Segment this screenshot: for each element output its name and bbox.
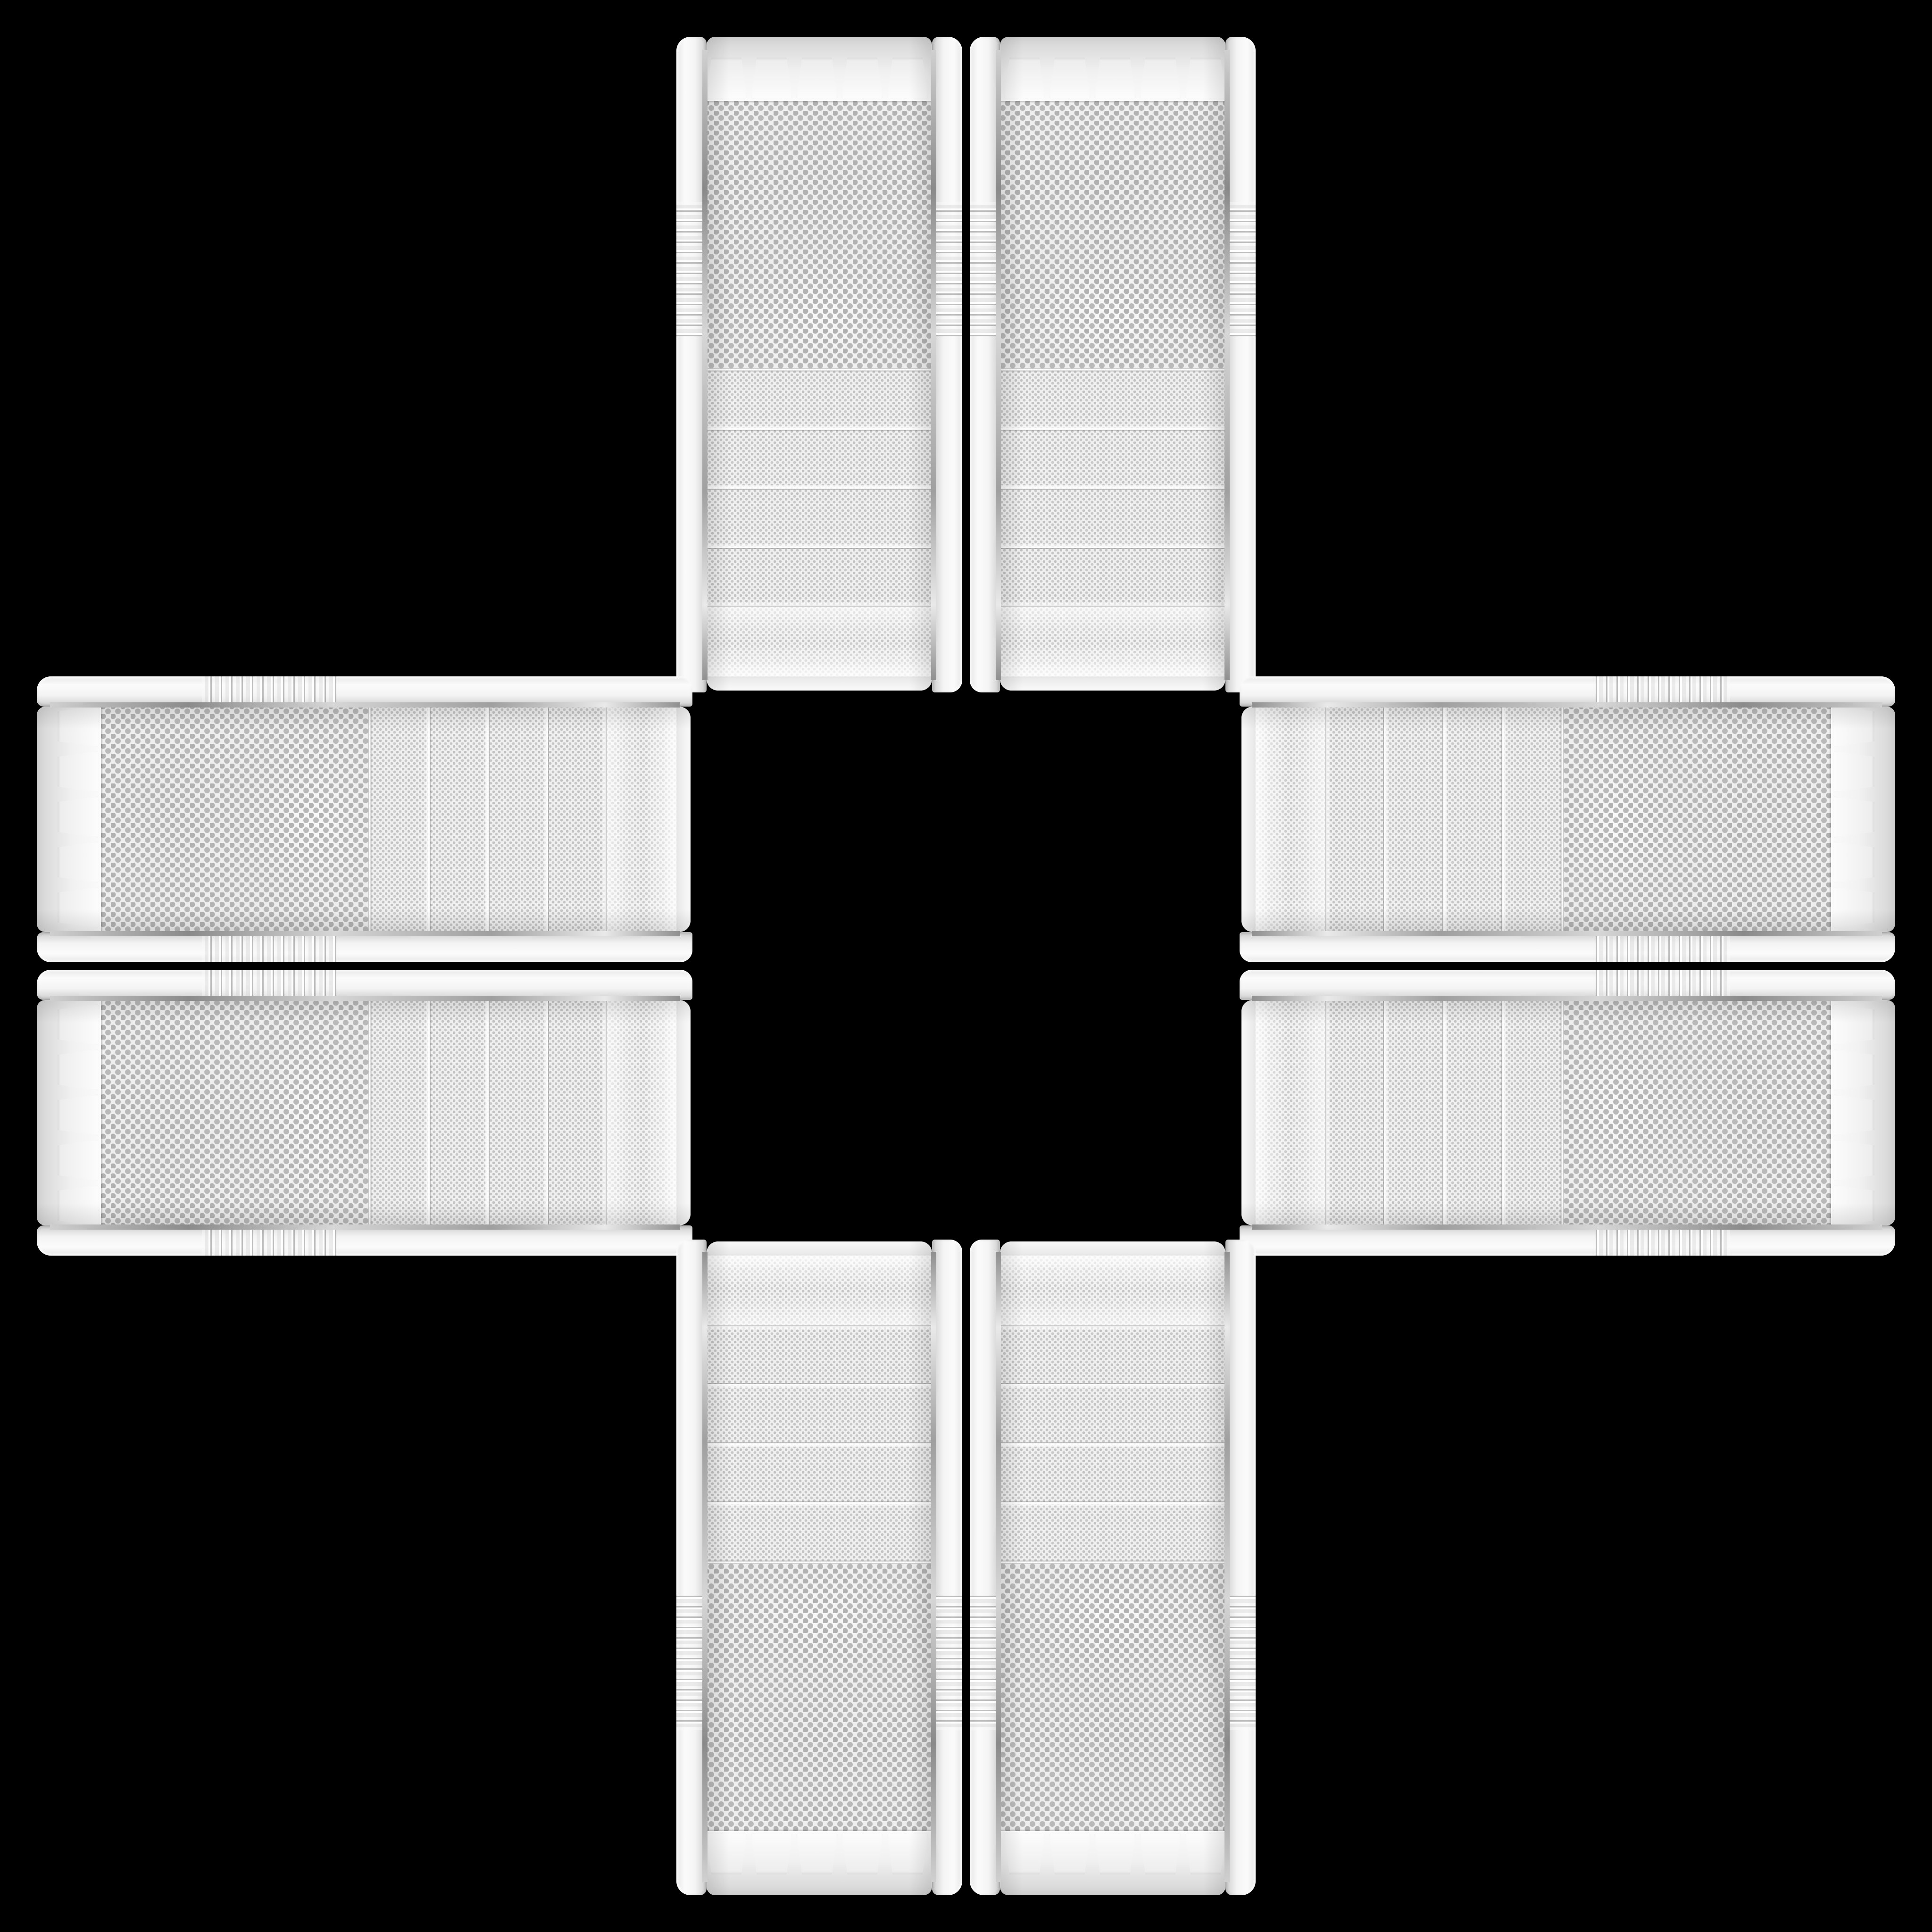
cap-facet <box>1834 796 1874 838</box>
case-left-bottom: COOLER MASTER <box>37 970 692 1256</box>
pc-case: COOLER MASTER <box>37 676 692 962</box>
cap-facet <box>1185 1834 1226 1874</box>
cap-facet <box>841 58 883 98</box>
chrome-trim-right <box>702 50 708 680</box>
case-bottom-right: COOLER MASTER <box>970 1240 1256 1895</box>
cap-facet <box>1094 1834 1136 1874</box>
cap-facet <box>1834 887 1874 928</box>
top-bezel-mesh <box>707 1241 932 1326</box>
case-bottom-left: COOLER MASTER <box>676 1240 962 1895</box>
side-rail-right <box>1225 37 1256 692</box>
side-rail-left <box>932 37 962 692</box>
bottom-cap-band <box>1000 37 1225 101</box>
drive-bay-covers <box>1326 1000 1563 1225</box>
chrome-trim-right <box>50 1224 680 1230</box>
drive-bay-covers <box>1000 369 1225 606</box>
top-bezel-mesh <box>606 707 691 932</box>
chrome-trim-right <box>1224 1252 1230 1882</box>
pc-case: COOLER MASTER <box>1240 970 1895 1256</box>
cap-facet <box>58 1094 98 1136</box>
cap-facet <box>751 58 792 98</box>
front-mesh: COOLER MASTER <box>1563 1000 1832 1225</box>
side-rail-right <box>1225 1240 1256 1895</box>
cap-facet <box>58 796 98 838</box>
case-right-bottom: COOLER MASTER <box>1240 970 1895 1256</box>
chrome-trim-right <box>50 702 680 708</box>
front-panel: COOLER MASTER <box>1240 1000 1895 1225</box>
top-cap <box>707 1241 932 1255</box>
side-rail-left <box>37 932 692 962</box>
pc-case: COOLER MASTER <box>37 970 692 1256</box>
cap-facet <box>706 1834 747 1874</box>
top-bezel-mesh <box>1000 1241 1225 1326</box>
cap-facet <box>1049 58 1091 98</box>
grip-ribs <box>1225 1596 1256 1730</box>
chrome-trim-left <box>1252 931 1882 936</box>
grip-ribs <box>1596 1225 1730 1256</box>
chrome-trim-right <box>1252 702 1882 708</box>
front-panel: COOLER MASTER <box>707 1240 932 1895</box>
front-panel: COOLER MASTER <box>1000 37 1225 692</box>
grip-ribs <box>202 932 336 962</box>
cap-facet <box>1185 58 1226 98</box>
cap-facet <box>1140 58 1181 98</box>
bottom-cap-band <box>707 1831 932 1895</box>
bottom-cap-band <box>1000 1831 1225 1895</box>
front-panel: COOLER MASTER <box>707 37 932 692</box>
chrome-trim-right <box>1224 50 1230 680</box>
top-cap <box>677 1000 691 1225</box>
cap-facet <box>1834 1049 1874 1091</box>
front-panel: COOLER MASTER <box>1240 707 1895 932</box>
front-mesh: COOLER MASTER <box>100 1000 369 1225</box>
front-mesh: COOLER MASTER <box>1000 100 1225 369</box>
side-rail-left <box>932 1240 962 1895</box>
drive-bay-covers <box>1326 707 1563 932</box>
cap-facet <box>796 1834 838 1874</box>
case-top-right: COOLER MASTER <box>970 37 1256 692</box>
chrome-trim-left <box>931 50 936 680</box>
top-bezel-mesh <box>1241 1000 1326 1225</box>
bottom-cap-band <box>37 707 101 932</box>
cap-facet <box>706 58 747 98</box>
pc-case: COOLER MASTER <box>1240 676 1895 962</box>
chrome-trim-right <box>1252 1224 1882 1230</box>
front-panel: COOLER MASTER <box>37 1000 692 1225</box>
top-bezel-mesh <box>707 606 932 691</box>
cap-facet <box>1834 1004 1874 1045</box>
front-mesh: COOLER MASTER <box>1563 707 1832 932</box>
cap-facet <box>1049 1834 1091 1874</box>
cap-facet <box>751 1834 792 1874</box>
top-bezel-mesh <box>606 1000 691 1225</box>
cap-facet <box>58 751 98 792</box>
top-cap <box>677 707 691 932</box>
top-cap <box>1241 1000 1255 1225</box>
pc-case: COOLER MASTER <box>970 37 1256 692</box>
pc-case: COOLER MASTER <box>676 37 962 692</box>
bottom-cap-band <box>707 37 932 101</box>
cap-facet <box>1094 58 1136 98</box>
cap-facet <box>1004 58 1045 98</box>
top-bezel-mesh <box>1000 606 1225 691</box>
case-top-left: COOLER MASTER <box>676 37 962 692</box>
drive-bay-covers <box>707 1326 932 1563</box>
cap-facet <box>841 1834 883 1874</box>
side-rail-right <box>1240 1225 1895 1256</box>
cap-facet <box>58 1049 98 1091</box>
cap-facet <box>887 1834 928 1874</box>
drive-bay-covers <box>369 707 606 932</box>
drive-bay-covers <box>707 369 932 606</box>
cap-facet <box>1834 1094 1874 1136</box>
cap-facet <box>1140 1834 1181 1874</box>
front-mesh: COOLER MASTER <box>707 1563 932 1832</box>
side-rail-right <box>37 1225 692 1256</box>
top-cap <box>1241 707 1255 932</box>
cap-facet <box>1004 1834 1045 1874</box>
chrome-trim-right <box>702 1252 708 1882</box>
cap-facet <box>1834 706 1874 747</box>
case-right-top: COOLER MASTER <box>1240 676 1895 962</box>
cap-facet <box>1834 841 1874 883</box>
grip-ribs <box>932 202 962 336</box>
top-cap <box>707 677 932 691</box>
top-bezel-mesh <box>1241 707 1326 932</box>
cap-facet <box>1834 1140 1874 1181</box>
pc-case: COOLER MASTER <box>970 1240 1256 1895</box>
chrome-trim-left <box>996 50 1001 680</box>
cap-facet <box>58 1140 98 1181</box>
cap-facet <box>887 58 928 98</box>
grip-ribs <box>202 1225 336 1256</box>
grip-ribs <box>1225 202 1256 336</box>
case-left-top: COOLER MASTER <box>37 676 692 962</box>
drive-bay-covers <box>369 1000 606 1225</box>
bottom-cap-band <box>1831 707 1895 932</box>
front-mesh: COOLER MASTER <box>707 100 932 369</box>
front-panel: COOLER MASTER <box>1000 1240 1225 1895</box>
pc-case: COOLER MASTER <box>676 1240 962 1895</box>
chrome-trim-left <box>931 1252 936 1882</box>
side-rail-left <box>1240 932 1895 962</box>
top-cap <box>1000 1241 1225 1255</box>
front-mesh: COOLER MASTER <box>100 707 369 932</box>
cap-facet <box>58 887 98 928</box>
cap-facet <box>58 1004 98 1045</box>
chrome-trim-left <box>50 996 680 1001</box>
chrome-trim-left <box>50 931 680 936</box>
grip-ribs <box>1596 932 1730 962</box>
chrome-trim-left <box>996 1252 1001 1882</box>
cap-facet <box>796 58 838 98</box>
grip-ribs <box>932 1596 962 1730</box>
cap-facet <box>58 706 98 747</box>
cap-facet <box>58 841 98 883</box>
chrome-trim-left <box>1252 996 1882 1001</box>
bottom-cap-band <box>1831 1000 1895 1225</box>
cap-facet <box>58 1185 98 1226</box>
drive-bay-covers <box>1000 1326 1225 1563</box>
front-panel: COOLER MASTER <box>37 707 692 932</box>
bottom-cap-band <box>37 1000 101 1225</box>
front-mesh: COOLER MASTER <box>1000 1563 1225 1832</box>
cap-facet <box>1834 1185 1874 1226</box>
case-collage: COOLER MASTER <box>0 0 1932 1932</box>
cap-facet <box>1834 751 1874 792</box>
top-cap <box>1000 677 1225 691</box>
